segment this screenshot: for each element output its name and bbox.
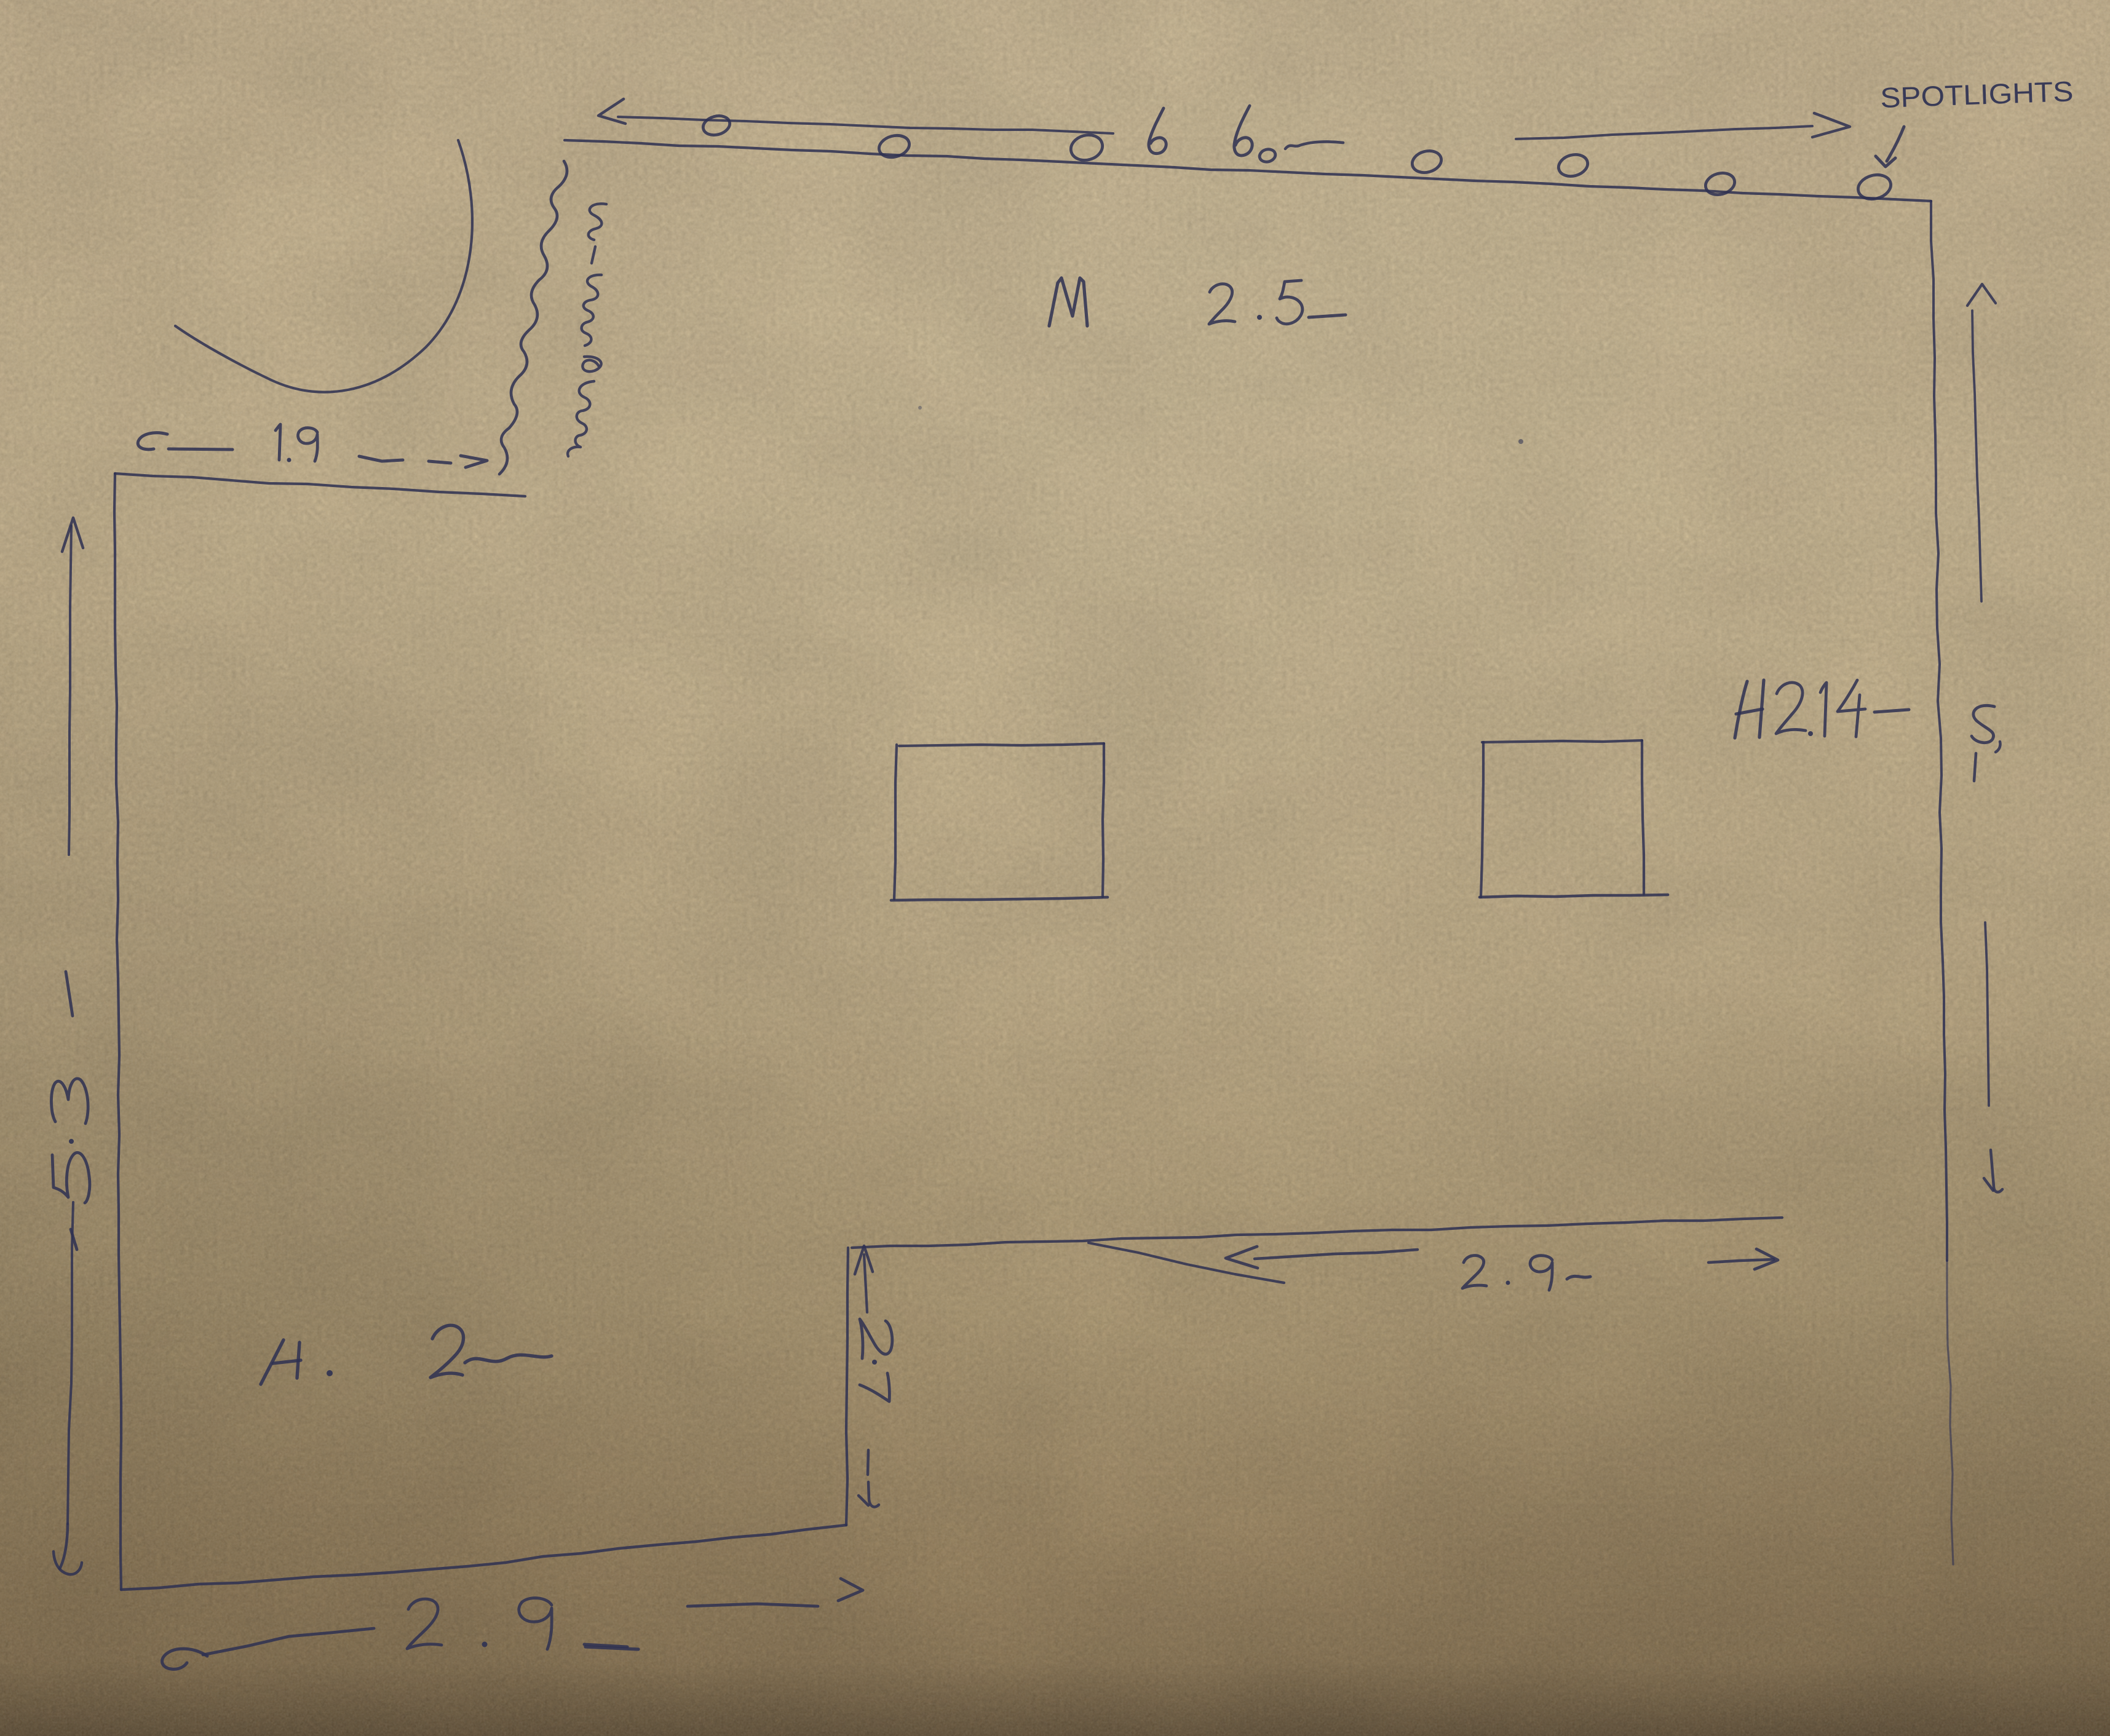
svg-text:SPOTLIGHTS: SPOTLIGHTS	[1880, 75, 2074, 114]
